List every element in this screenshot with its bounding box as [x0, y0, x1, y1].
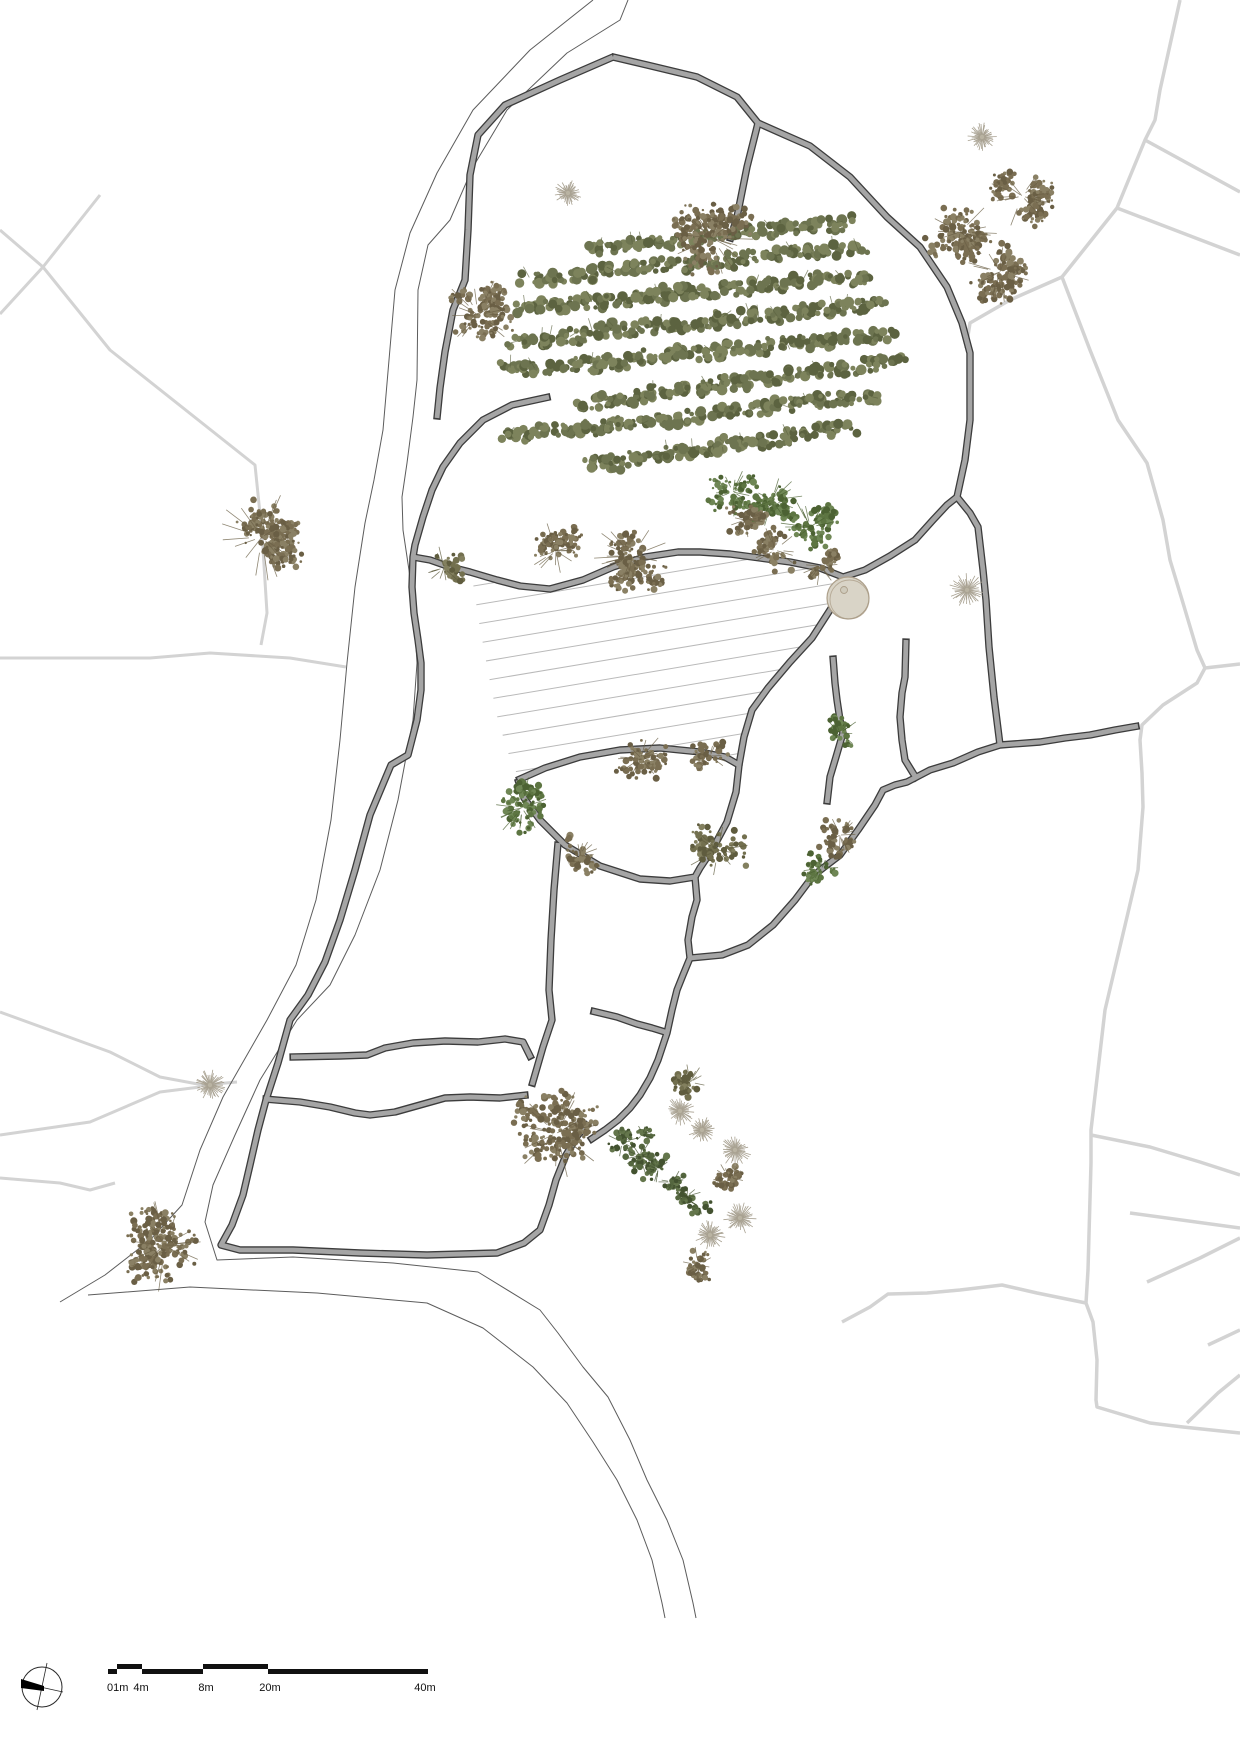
scale-bar: 01m 4m 8m 20m 40m	[107, 1664, 436, 1694]
starburst-plant	[723, 1137, 751, 1166]
field-boundary-line	[1091, 1135, 1240, 1175]
green-tree	[781, 502, 839, 551]
brown-tree	[534, 524, 583, 573]
site-plan-page: 01m 4m 8m 20m 40m	[0, 0, 1240, 1754]
orchard-row	[498, 389, 882, 444]
field-boundary-line	[0, 1178, 115, 1190]
brown-tree	[126, 1201, 200, 1291]
brown-tree	[712, 1163, 744, 1192]
stone-path	[532, 843, 558, 1085]
field-boundary-line	[0, 653, 346, 667]
starburst-plant	[689, 1117, 715, 1141]
field-boundary-line	[1130, 1213, 1240, 1228]
field-boundary-line	[1147, 1238, 1240, 1282]
scale-segment-lower	[108, 1669, 117, 1674]
scale-label-2: 8m	[198, 1682, 213, 1694]
scale-segment-lower	[268, 1669, 428, 1674]
brown-tree	[922, 205, 997, 265]
starburst-plant	[723, 1203, 756, 1233]
scale-segment-upper	[203, 1664, 268, 1669]
scale-segment-upper	[117, 1664, 142, 1669]
brown-tree	[989, 169, 1054, 230]
context-roads-layer	[0, 0, 1240, 1433]
brown-tree	[565, 832, 600, 876]
brown-tree	[594, 530, 667, 594]
stone-path-outline	[589, 875, 697, 1140]
stone-path	[590, 877, 697, 1140]
starburst-plant	[696, 1220, 725, 1249]
site-plan-svg: 01m 4m 8m 20m 40m	[0, 0, 1240, 1754]
scale-label-0: 01m	[107, 1682, 128, 1694]
brown-tree	[428, 547, 465, 585]
stone-path-outline	[688, 726, 1139, 958]
stone-path	[690, 726, 1138, 958]
stone-path	[291, 1039, 531, 1058]
round-water-feature	[827, 577, 869, 619]
field-boundary-line	[1145, 140, 1240, 192]
scale-segment-lower	[142, 1669, 203, 1674]
field-boundary-line	[1062, 0, 1240, 1433]
green-tree	[608, 1127, 637, 1157]
brown-tree	[671, 1065, 705, 1101]
field-boundary-line	[0, 195, 100, 314]
brown-tree	[816, 817, 856, 860]
field-boundary-line	[0, 1012, 237, 1085]
brown-tree	[683, 1247, 711, 1283]
stone-path	[739, 585, 845, 765]
trees-layer	[126, 169, 1054, 1292]
field-boundary-line	[0, 230, 267, 645]
green-tree	[687, 1200, 713, 1216]
palm-starburst-layer	[196, 123, 997, 1249]
brown-tree	[511, 1088, 599, 1177]
field-boundary-line	[0, 1087, 200, 1135]
field-boundary-line	[842, 1285, 1086, 1322]
brown-tree	[752, 525, 797, 575]
stone-path	[592, 1011, 665, 1032]
field-boundary-line	[1205, 664, 1240, 668]
field-boundary-line	[1208, 1330, 1240, 1345]
field-boundary-line	[1117, 208, 1240, 255]
field-boundary-line	[1187, 1375, 1240, 1423]
starburst-plant	[968, 123, 997, 151]
water-feature-center-dot	[841, 587, 848, 594]
starburst-plant	[950, 573, 983, 605]
scale-label-1: 4m	[133, 1682, 148, 1694]
compass-rose	[21, 1663, 63, 1710]
green-tree	[496, 777, 546, 835]
green-tree	[636, 1126, 655, 1144]
water-feature-outer-ring	[827, 577, 869, 619]
stone-path	[264, 1095, 527, 1115]
scale-label-4: 40m	[414, 1682, 435, 1694]
starburst-plant	[555, 181, 581, 206]
scale-label-3: 20m	[259, 1682, 280, 1694]
road-edge-line	[88, 1287, 665, 1618]
starburst-plant	[668, 1099, 694, 1126]
north-needle	[21, 1679, 44, 1691]
